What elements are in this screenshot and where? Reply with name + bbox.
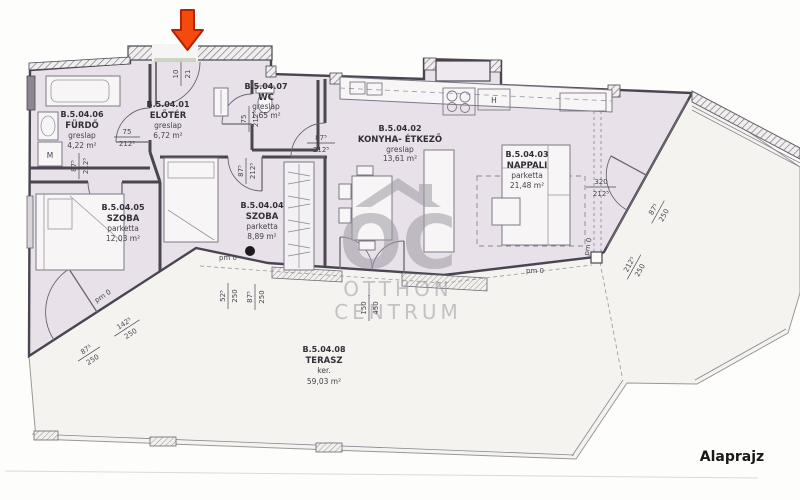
railing-post [34, 431, 58, 440]
svg-text:75: 75 [240, 115, 248, 124]
svg-text:13,61 m²: 13,61 m² [383, 154, 417, 163]
svg-text:150: 150 [360, 301, 368, 314]
dining-chair [357, 166, 373, 175]
svg-text:parketta: parketta [107, 224, 139, 233]
svg-text:212⁵: 212⁵ [593, 190, 609, 198]
svg-text:21,48 m²: 21,48 m² [510, 181, 544, 190]
svg-text:SZOBA: SZOBA [107, 214, 140, 224]
plan-caption: Alaprajz [700, 449, 764, 465]
railing-post [316, 443, 342, 452]
svg-text:320: 320 [594, 178, 607, 186]
svg-text:greslap: greslap [154, 121, 182, 130]
floorplan-page: M H [0, 0, 800, 500]
svg-text:212⁵: 212⁵ [119, 140, 135, 148]
svg-text:B.5.04.04: B.5.04.04 [240, 201, 283, 210]
svg-text:87⁵: 87⁵ [246, 291, 254, 303]
svg-text:greslap: greslap [68, 131, 96, 140]
svg-text:KONYHA- ÉTKEZŐ: KONYHA- ÉTKEZŐ [358, 133, 442, 145]
svg-text:B.5.04.05: B.5.04.05 [101, 203, 144, 212]
fridge-letter: H [491, 96, 497, 105]
svg-text:450: 450 [372, 301, 380, 314]
svg-text:NAPPALI: NAPPALI [507, 161, 548, 171]
svg-text:TERASZ: TERASZ [305, 356, 342, 366]
room-label-szoba1: B.5.04.05 SZOBA parketta 12,03 m² [101, 203, 144, 243]
svg-text:59,03 m²: 59,03 m² [307, 377, 341, 386]
svg-text:greslap: greslap [252, 102, 280, 111]
svg-text:8,89 m²: 8,89 m² [247, 232, 276, 241]
kitchen-shaft [436, 61, 490, 81]
svg-text:ELŐTÉR: ELŐTÉR [150, 109, 187, 121]
room-label-nappali: B.5.04.03 NAPPALI parketta 21,48 m² [505, 150, 548, 190]
level-marker: pm 0 [219, 254, 237, 262]
entrance-threshold [154, 58, 196, 62]
svg-text:B.5.04.07: B.5.04.07 [244, 82, 287, 91]
svg-text:52⁵: 52⁵ [219, 290, 227, 302]
svg-text:4,22 m²: 4,22 m² [67, 141, 96, 150]
svg-text:B.5.04.08: B.5.04.08 [302, 345, 345, 354]
watermark-line1: OTTHON [343, 277, 453, 301]
watermark-line2: CENTRUM [334, 300, 462, 324]
svg-text:212⁵: 212⁵ [252, 111, 260, 127]
level-marker: pm 0 [526, 267, 544, 275]
svg-text:212⁵: 212⁵ [249, 163, 257, 179]
svg-text:21: 21 [184, 70, 192, 79]
svg-text:B.5.04.06: B.5.04.06 [60, 110, 103, 119]
washer-letter: M [47, 151, 53, 160]
bedroom2-bed [164, 158, 218, 242]
watermark-abbr: OC [339, 200, 456, 286]
column-marker [245, 246, 255, 256]
railing-post [150, 437, 176, 446]
svg-text:87⁵: 87⁵ [315, 134, 327, 142]
svg-text:ker.: ker. [317, 366, 330, 375]
wardrobe [284, 162, 314, 270]
floorplan-svg: M H [0, 0, 800, 500]
svg-text:greslap: greslap [386, 145, 414, 154]
dining-chair [339, 184, 351, 199]
watermark: OC OTTHON CENTRUM [334, 178, 462, 324]
room-label-terasz: B.5.04.08 TERASZ ker. 59,03 m² [302, 345, 345, 386]
svg-text:212⁵: 212⁵ [82, 158, 90, 174]
svg-text:B.5.04.02: B.5.04.02 [378, 124, 421, 133]
svg-text:212⁵: 212⁵ [313, 146, 329, 154]
svg-text:6,72 m²: 6,72 m² [153, 131, 182, 140]
svg-text:87⁵: 87⁵ [237, 165, 245, 177]
svg-text:250: 250 [258, 290, 266, 303]
coffee-table [492, 198, 520, 225]
svg-text:75: 75 [123, 128, 132, 136]
svg-text:87⁵: 87⁵ [70, 160, 78, 172]
svg-text:SZOBA: SZOBA [246, 212, 279, 222]
svg-text:parketta: parketta [246, 222, 278, 231]
svg-text:parketta: parketta [511, 171, 543, 180]
door-stop-block [591, 252, 602, 263]
svg-text:12,03 m²: 12,03 m² [106, 234, 140, 243]
svg-text:B.5.04.03: B.5.04.03 [505, 150, 548, 159]
svg-text:B.5.04.01: B.5.04.01 [146, 100, 189, 109]
svg-text:250: 250 [231, 289, 239, 302]
svg-text:10: 10 [172, 70, 180, 79]
svg-text:FÜRDŐ: FÜRDŐ [65, 120, 99, 131]
